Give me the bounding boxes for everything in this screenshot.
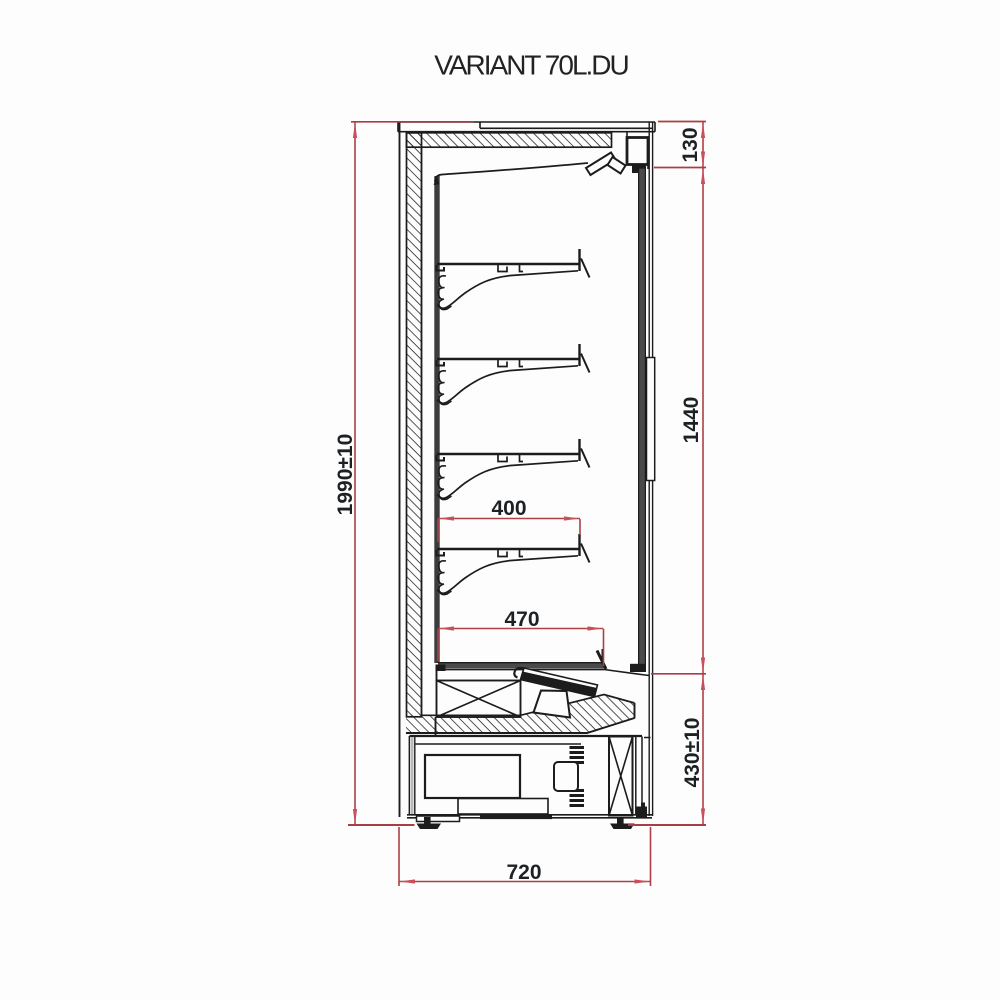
svg-text:1990±10: 1990±10 [334, 434, 357, 516]
svg-text:VARIANT 70L.DU: VARIANT 70L.DU [434, 50, 628, 81]
svg-text:470: 470 [504, 608, 539, 631]
svg-text:1440: 1440 [680, 397, 703, 444]
svg-text:430±10: 430±10 [681, 718, 704, 788]
svg-text:720: 720 [506, 861, 541, 884]
svg-text:130: 130 [679, 127, 702, 162]
svg-text:400: 400 [491, 497, 526, 520]
